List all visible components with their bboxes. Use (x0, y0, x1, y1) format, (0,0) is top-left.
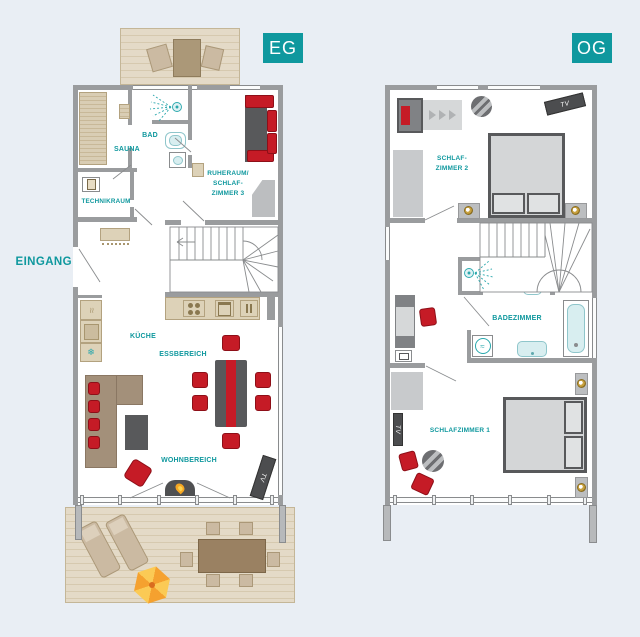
wall-sz2 (385, 218, 425, 223)
room-label-ruheraum2: SCHLAF- (199, 179, 257, 188)
wall (592, 85, 597, 298)
lamp-icon (577, 483, 586, 492)
wall (73, 85, 78, 247)
stove (183, 300, 205, 317)
arrow-icon (439, 110, 446, 120)
room-label-ruheraum3: ZIMMER 3 (199, 189, 257, 198)
lounge-chair (410, 472, 435, 496)
umbrella-pole (149, 582, 155, 588)
wall (73, 85, 133, 90)
bed-pillow (564, 436, 583, 469)
daybed-cushion (267, 133, 277, 154)
wall (385, 85, 390, 227)
media-panel (423, 100, 462, 130)
eg-building: SAUNA BAD TECHNIKRAUM RUHERAUM/ SCHLAF- … (73, 85, 283, 505)
wall (478, 85, 488, 90)
window (437, 85, 478, 90)
eg-floor-badge: EG (263, 33, 303, 63)
window (488, 85, 540, 90)
lounge-chair (398, 450, 419, 472)
coat-hooks (102, 243, 129, 245)
outdoor-chair (206, 522, 220, 535)
window-post (118, 495, 122, 505)
window-post (508, 495, 512, 505)
lamp-icon (571, 206, 580, 215)
washer-drum-icon: ≈ (475, 338, 491, 354)
kitchen-cabinet (80, 320, 102, 343)
window-post (547, 495, 551, 505)
terrace-chair (146, 44, 173, 73)
sideboard (397, 98, 423, 133)
kitchen-sink (215, 300, 234, 317)
boiler-icon (82, 177, 100, 192)
window-post (233, 495, 237, 505)
tub-drain (574, 343, 578, 347)
wall-stairs (458, 257, 557, 261)
wardrobe (391, 372, 423, 410)
wall-sz1 (385, 363, 425, 368)
sink-basin (173, 156, 183, 165)
wall (73, 287, 78, 496)
bathtub (563, 300, 589, 357)
wall-sauna-bottom (73, 168, 137, 172)
sauna-stool (119, 104, 130, 119)
toilet-bowl (527, 277, 538, 292)
stool (419, 307, 437, 327)
sofa-pillow (88, 418, 100, 431)
flame-icon (174, 482, 187, 495)
desk (395, 295, 415, 348)
room-label-schlafzimmer2: SCHLAF- (422, 154, 482, 163)
double-bed (503, 397, 587, 473)
terrace-pillar (75, 505, 82, 540)
terrace-table (173, 39, 201, 77)
outdoor-chair (239, 522, 253, 535)
terrace-pillar (279, 505, 286, 543)
wall (278, 85, 283, 327)
floorplan-canvas: EG EINGANG (0, 0, 640, 637)
dining-chair (192, 395, 208, 411)
washing-machine: ≈ (472, 335, 493, 357)
window-post (195, 495, 199, 505)
armchair (123, 458, 153, 488)
window (385, 227, 390, 260)
wall-shower (458, 291, 483, 295)
bad-sink (169, 152, 186, 168)
room-label-essbereich: ESSBEREICH (153, 350, 213, 359)
room-label-technikraum: TECHNIKRAUM (78, 197, 134, 206)
wall-technikraum (130, 172, 134, 200)
daybed-pillow (245, 95, 274, 108)
outdoor-chair (239, 574, 253, 587)
coffee-table (125, 415, 148, 450)
terrace-chair (201, 45, 224, 71)
dining-chair (255, 395, 271, 411)
fireplace (165, 480, 195, 496)
wall-hall (165, 220, 181, 225)
bed-pillow (492, 193, 525, 214)
bed-pillow (527, 193, 560, 214)
outdoor-chair (267, 552, 280, 567)
room-label-sauna: SAUNA (106, 145, 148, 154)
entrance-label: EINGANG (8, 258, 72, 267)
tv-label: TV (560, 99, 571, 108)
tv-unit: TV (393, 413, 403, 446)
wall-technikraum-bottom (73, 217, 137, 222)
round-table (422, 450, 444, 472)
table-runner (226, 360, 236, 427)
utensils-icon (246, 304, 252, 313)
toilet-bowl (169, 135, 182, 146)
wall-stub (267, 292, 275, 320)
wall-shower (458, 261, 462, 295)
eg-top-terrace (120, 28, 240, 85)
wall-hall (205, 220, 280, 225)
tv-unit: TV (250, 455, 277, 500)
sofa-pillow (88, 436, 100, 449)
room-label-schlafzimmer2b: ZIMMER 2 (422, 164, 482, 173)
outdoor-table (198, 539, 266, 573)
sofa-pillow (88, 400, 100, 413)
tv-label: TV (258, 472, 268, 483)
dining-table (215, 360, 247, 427)
wall-stairs (550, 261, 555, 295)
tv-unit: TV (544, 92, 586, 115)
window-post (80, 495, 84, 505)
steam-icon: ≈ (86, 307, 97, 313)
wardrobe (393, 150, 423, 217)
dining-chair (222, 433, 240, 449)
window-post (157, 495, 161, 505)
outdoor-chair (180, 552, 193, 567)
room-label-wohnbereich: WOHNBEREICH (159, 456, 219, 465)
room-label-bad: BAD (137, 131, 163, 140)
og-building: TV SCHLAF- ZIMMER 2 BADEZIMMER ≈ (385, 85, 597, 505)
lamp-icon (577, 379, 586, 388)
arrow-icon (449, 110, 456, 120)
wall-technikraum (130, 207, 134, 217)
coat-rack (100, 228, 130, 241)
og-floor-badge: OG (572, 33, 612, 63)
safe (395, 350, 412, 362)
wall (197, 85, 230, 90)
dining-chair (192, 372, 208, 388)
wall-stub (78, 295, 102, 298)
window (592, 298, 597, 358)
room-label-schlafzimmer1: SCHLAFZIMMER 1 (424, 426, 496, 435)
roof-pillar (383, 505, 391, 541)
window-post (270, 495, 274, 505)
round-stool (471, 96, 492, 117)
bed-pillow (564, 401, 583, 434)
dining-chair (255, 372, 271, 388)
wall (385, 85, 437, 90)
sofa-pillow (88, 382, 100, 395)
outdoor-chair (206, 574, 220, 587)
snowflake-icon: ❄ (87, 347, 95, 358)
daybed-cushion (267, 110, 277, 132)
room-label-ruheraum: RUHERAUM/ (199, 169, 257, 178)
room-label-badezimmer: BADEZIMMER (482, 314, 552, 323)
window-band-bottom (78, 497, 278, 503)
sauna-bench (79, 92, 107, 165)
freezer: ❄ (80, 343, 102, 362)
wall-bath-bottom (467, 358, 592, 363)
wall (592, 358, 597, 496)
double-bed (488, 133, 565, 218)
wall (592, 495, 597, 505)
wall-shower (152, 120, 192, 124)
window-post (470, 495, 474, 505)
dining-chair (222, 335, 240, 351)
tv-label: TV (395, 425, 402, 434)
window-band-bottom (390, 497, 592, 503)
wall-bad-ruheraum (188, 85, 192, 140)
bath-sink (517, 341, 547, 357)
room-label-kueche: KÜCHE (118, 332, 168, 341)
roof-pillar (589, 505, 597, 543)
window-band-right (278, 327, 283, 496)
window-post (393, 495, 397, 505)
red-decor (401, 106, 410, 125)
window (230, 85, 260, 90)
wall (385, 260, 390, 496)
window-post (432, 495, 436, 505)
dishwasher (240, 300, 258, 317)
eg-bottom-terrace (65, 507, 295, 603)
wall (278, 495, 283, 505)
oven: ≈ (80, 300, 102, 320)
lamp-icon (464, 206, 473, 215)
wall (540, 85, 597, 90)
arrow-icon (429, 110, 436, 120)
